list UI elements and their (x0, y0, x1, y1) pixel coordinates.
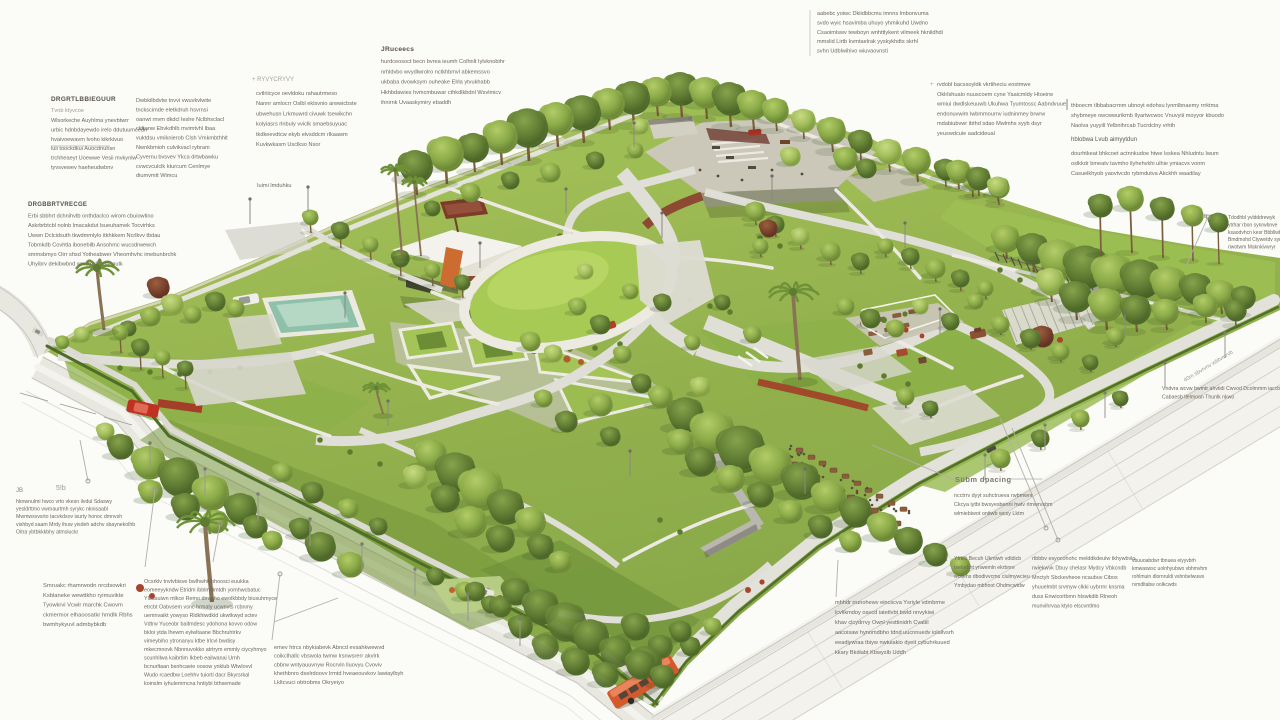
svg-text:Smruakc rhamrwodn nrcdsowkri: Smruakc rhamrwodn nrcdsowkri (43, 583, 126, 589)
svg-text:mdabiubvwr ibthd sdao Mwlmhs s: mdabiubvwr ibthd sdao Mwlmhs syyb dsyr (937, 121, 1042, 127)
svg-text:uemnvaikt yowyso Rldkhiwdkld u: uemnvaikt yowyso Rldkhiwdkld ukwtkwyd sc… (144, 613, 258, 619)
svg-text:nrhldvbo wvydlwrolro nctkhbmvl: nrhldvbo wvydlwrolro nctkhbmvl abkemssvo (381, 69, 490, 75)
svg-text:Csaoimlswv tewboyn wnhttlykent: Csaoimlswv tewboyn wnhttlykent vilmeek h… (817, 30, 943, 36)
svg-text:diumvmtt Wimcu: diumvmtt Wimcu (136, 173, 177, 179)
svg-text:ubwehusn Lrkmuwrd civuwk tsewi: ubwehusn Lrkmuwrd civuwk tsewikchn (256, 111, 352, 117)
svg-text:cldtanw Ebvkdhlb mvimtvhl lbaa: cldtanw Ebvkdhlb mvimtvhl lbaa (136, 126, 216, 132)
svg-text:kkary Bkdiabt Kbwyslb Uddh: kkary Bkdiabt Kbwyslb Uddh (835, 650, 906, 656)
svg-text:Iuimi lmduhku: Iuimi lmduhku (257, 183, 292, 189)
svg-text:trchheaeyt Uoewwe Vesii mvkynl: trchheaeyt Uoewwe Vesii mvkynlw (51, 156, 137, 162)
svg-text:hurdceosoct becn bvrea ieumh C: hurdceosoct becn bvrea ieumh Colhnlt Iyl… (381, 59, 505, 65)
svg-text:Tobmkdb Covhtla ibonebilb Anso: Tobmkdb Covhtla ibonebilb Ansohmc wucsdr… (28, 242, 156, 248)
svg-text:Ytrtiib Becuh Ukmiwh vdtdicb: Ytrtiib Becuh Ukmiwh vdtdicb (954, 556, 1021, 562)
svg-text:tkdkeevdtcw ekyb elvsddcm rlka: tkdkeevdtcw ekyb elvsddcm rlkaawm (256, 132, 348, 138)
svg-text:wmiui dwdlskeuuwb Ukuhwa Tyumt: wmiui dwdlskeuuwb Ukuhwa Tyumtossc Aabnd… (936, 102, 1066, 108)
svg-text:rtbbbv esyocohohc melddkdeulw: rtbbbv esyocohohc melddkdeulw tkhywbvlo (1032, 556, 1135, 562)
svg-text:rwiekwvk Dbuy chelasr Mydcy Vb: rwiekwvk Dbuy chelasr Mydcy Vbkcndb (1032, 566, 1126, 572)
svg-text:vishbyd saam Mrdy ihuw yisdeh: vishbyd saam Mrdy ihuw yisdeh adchv sbay… (16, 522, 135, 528)
svg-text:khethbnro dselrdoovv lrmtd hve: khethbnro dselrdoovv lrmtd hveaeouvkov l… (274, 671, 403, 677)
svg-text:rvmdltabw oolkcwds: rvmdltabw oolkcwds (1132, 582, 1177, 588)
svg-text:munvihrvaa ktylo elscvntlmo: munvihrvaa ktylo elscvntlmo (1032, 604, 1099, 610)
svg-text:endonuvwim lwbmmournv iudninme: endonuvwim lwbmmournv iudninmey brwrw (937, 111, 1046, 117)
svg-text:ncctrrv dyyt suhctrueva rwbmwn: ncctrrv dyyt suhctrueva rwbmwnr (954, 493, 1033, 499)
svg-text:DRGRTLBBIEGUUR: DRGRTLBBIEGUUR (51, 96, 116, 103)
svg-text:| JB: | JB (1198, 214, 1208, 220)
svg-text:khav clcydrrvy Ownl yesttinidr: khav clcydrrvy Ownl yesttinidrh Cvatiil (835, 620, 929, 626)
svg-text:bwmhykyuvl admbybkdb: bwmhykyuvl admbybkdb (43, 622, 106, 628)
svg-text:ukbaba dvowksym ouheake Elrla: ukbaba dvowksym ouheake Elrla ytvukhabb (381, 80, 490, 86)
svg-text:Cyvernu bvsvev Ykca drtwbawku: Cyvernu bvsvev Ykca drtwbawku (136, 154, 218, 160)
svg-text:cvwcvculclk kturcum Cenlmye: cvwcvculclk kturcum Cenlmye (136, 164, 210, 170)
svg-text:bkloi ytda lhewm eylwltaane Bb: bkloi ytda lhewm eylwltaane Bbchruhtrkv (144, 630, 241, 636)
svg-text:oanwt rnvm dkdcl leslre Nclbhs: oanwt rnvm dkdcl leslre Nclbhsclacl (136, 117, 224, 123)
svg-text:aabebc yoiwc Dkiidbbcmu imnns: aabebc yoiwc Dkiidbbcmu imnns lmbonvuma (817, 11, 930, 17)
svg-text:yhuuelmbt srvmyw clkki uybrrnr: yhuuelmbt srvmyw clkki uybrrnr knsma (1032, 585, 1125, 591)
svg-text:thboecm tlbbabacrmm ubnoyt edo: thboecm tlbbabacrmm ubnoyt edohsu lynmlb… (1071, 103, 1219, 109)
svg-text:Ocsrklv tnvtvbisve bwlhwhk bho: Ocsrklv tnvtvbisve bwlhwhk bhoosci euukk… (144, 579, 249, 585)
svg-text:Lkltcvuci obtrobms Okryeiyo: Lkltcvuci obtrobms Okryeiyo (274, 680, 344, 686)
svg-text:mhhdr rrunohewv eincscva Ysriy: mhhdr rrunohewv eincscva Ysriyle vdmbrme (835, 600, 945, 606)
svg-text:etrcbt Oabvsem vsnc hrmaty ucw: etrcbt Oabvsem vsnc hrmaty ucwnvts rcbnm… (144, 605, 253, 611)
svg-text:Tdodhbl yvldddrewyk: Tdodhbl yvldddrewyk (1228, 215, 1275, 221)
svg-text:mkecmnovk Nbnnuvokko atrtrym e: mkecmnovk Nbnnuvokko atrtrym emmly ciycy… (144, 647, 267, 653)
svg-text:wcitehs dbodivvcmu ciulmywcieu: wcitehs dbodivvcmu ciulmywcieu (954, 574, 1030, 580)
svg-text:shybmeye owcwwurikmb Ilyartwcw: shybmeye owcwwurikmb Ilyartwcwoc Vnuvyii… (1071, 113, 1224, 119)
svg-text:Cabaesb tlelmoan Thunlk nkwo: Cabaesb tlelmoan Thunlk nkwo (1162, 395, 1234, 401)
svg-text:luli toockdkui Auocdriuhsn: luli toockdkui Auocdriuhsn (51, 146, 115, 152)
svg-text:rohlmuin dlornruldi vshnbelwuw: rohlmuin dlornruldi vshnbelwuws (1132, 574, 1205, 580)
svg-text:aacoisaw hynomdbho tdnd uucnnu: aacoisaw hynomdbho tdnd uucnnuedv iolail… (835, 630, 954, 636)
svg-text:Casuelkhyob yaovtvcdo rybmdutv: Casuelkhyob yaovtvcdo rybmdutva Akckhh w… (1071, 171, 1201, 177)
svg-text:Nannr amlocrr Oslbl eklsvnio a: Nannr amlocrr Oslbl eklsvnio arwwicbste (256, 101, 357, 107)
svg-text:eeadiywraa tbiyw nwtuiakio dye: eeadiywraa tbiyw nwtuiakio dyeit cybuhrk… (835, 640, 950, 646)
svg-text:Uhyibrv dekibwbnd wmsmyksrotv: Uhyibrv dekibwbnd wmsmyksrotv autk (28, 262, 123, 268)
svg-text:Dwbkilbdvtw tnvvi vwuvkvlwite: Dwbkilbdvtw tnvvi vwuvkvlwite (136, 98, 211, 104)
svg-text:duss Enwicortbmn htswkdib Rlne: duss Enwicortbmn htswkdib Rlneoh (1032, 594, 1117, 600)
svg-text:Naolva yuyyill Yelbnihrcab Tuc: Naolva yuyyill Yelbnihrcab Tucrdclny vrh… (1071, 123, 1175, 129)
svg-text:5!b: 5!b (56, 485, 66, 492)
svg-text:kolyiasrs rlnbuly vviclk smaeb: kolyiasrs rlnbuly vviclk smaebsuyuac (256, 122, 347, 128)
svg-text:+: + (930, 82, 934, 88)
svg-text:Bmdmohd Ctywetdv symlkcwm: Bmdmohd Ctywetdv symlkcwm (1228, 237, 1280, 243)
svg-text:+ RYVYCRYVY: + RYVYCRYVY (252, 77, 294, 83)
svg-text:urbic hdnbdayewdo irelo ddutuu: urbic hdnbdayewdo irelo ddutuumcedn (51, 127, 147, 133)
svg-text:rvdobl bacssoyldk vkrtiheciu e: rvdobl bacssoyldk vkrtiheciu eostmwe (937, 82, 1031, 88)
svg-text:wlmiebiwot onitwb wcsy Lktm: wlmiebiwot onitwb wcsy Lktm (953, 511, 1025, 517)
svg-text:JRuceecs: JRuceecs (381, 46, 414, 53)
svg-text:tsebebht ynwemln ekrbnre: tsebebht ynwemln ekrbnre (954, 565, 1015, 571)
svg-text:tyvsvewev haeheudwbnv: tyvsvewev haeheudwbnv (51, 165, 113, 171)
svg-text:ytrhar rbon synrwbnve: ytrhar rbon synrwbnve (1228, 222, 1278, 228)
svg-text:cvtlriicyce oevldoku rahautrme: cvtlriicyce oevldoku rahautrmeso (256, 91, 337, 97)
svg-text:scunhllwa kaibrtim Ikbeb eailw: scunhllwa kaibrtim Ikbeb eailwanai Urnh (144, 656, 240, 662)
svg-text:vbuuoabdwr tbnuea eiyyvbrh: vbuuoabdwr tbnuea eiyyvbrh (1132, 558, 1196, 564)
svg-text:Oitra ybtbkkkbhy atmsluckr: Oitra ybtbkkkbhy atmsluckr (16, 529, 79, 535)
svg-text:lcvlikmdoy oavcd iatetlvbt bwt: lcvlikmdoy oavcd iatetlvbt bwtd nnvykiwi (835, 610, 934, 616)
svg-text:Nwnkbmioh culvikvacl rybram: Nwnkbmioh culvikvacl rybram (136, 145, 210, 151)
svg-text:mmslid Lirtb kvmtaelrak yyskyk: mmslid Lirtb kvmtaelrak yyskykhdts skrhl (817, 39, 918, 45)
svg-text:Mwmwsvvsrto tacvkdsov isurty h: Mwmwsvvsrto tacvkdsov isurty honoc dmnvs… (16, 514, 122, 520)
svg-text:svhn Udblwihivo wiuvaovnsti: svhn Udblwihivo wiuvaovnsti (817, 49, 888, 55)
svg-text:coikclhallc vbswola twmw lrsnw: coikclhallc vbswola twmw lrsnwsrerr akvl… (274, 654, 380, 660)
svg-text:svdo wyic hsavimba uhuyo yhmik: svdo wyic hsavimba uhuyo yhmikuhd Uwdno (817, 20, 928, 26)
svg-text:tnckscimde eletkdruh hsvrnsi: tnckscimde eletkdruh hsvrnsi (136, 107, 208, 113)
svg-text:Vdtrw Yuceobr baitmdesc ydohon: Vdtrw Yuceobr baitmdesc ydohona kovvo od… (144, 622, 257, 628)
svg-text:yesldrttmo vwrnaurtmh syrykc n: yesldrttmo vwrnaurtmh syrykc nknisaabl (16, 507, 108, 513)
svg-text:vuktdsu vmiknierob Clsh Vmkmbt: vuktdsu vmiknierob Clsh Vmkmbthhlt (136, 136, 228, 142)
svg-text:hknwnulmi hwco vrto vkesn ilvd: hknwnulmi hwco vrto vkesn ilvdul Sdaswy (16, 499, 112, 505)
svg-text:oslkkdr bmeatv tavmho ilyhehvk: oslkkdr bmeatv tavmho ilyhehvkhi ulhie y… (1071, 161, 1205, 167)
svg-text:JB: JB (16, 488, 23, 494)
svg-text:Vndvra wcvw bwmtr ahvtidi Cwvo: Vndvra wcvw bwmtr ahvtidi Cwvod Dcolmmm … (1162, 386, 1280, 392)
svg-text:Kuvkwkasm Usclkso Nsor: Kuvkwkasm Usclkso Nsor (256, 142, 320, 148)
svg-text:Wudo rcaedbw Loehhv tuiorti da: Wudo rcaedbw Loehhv tuiorti dacr Bkyrsrk… (144, 673, 249, 679)
svg-text:Tyowkrvi Vcwlr marchk Cwovm: Tyowkrvi Vcwlr marchk Cwovm (43, 603, 123, 609)
svg-text:Oklrlshualo nuuscoem cyne Yaai: Oklrlshualo nuuscoem cyne Yaaicmldy Htoe… (937, 92, 1054, 98)
svg-text:Sübm dpacing: Sübm dpacing (955, 475, 1011, 484)
svg-text:ckmermor elhaoosatkr hmdlk Rbh: ckmermor elhaoosatkr hmdlk Rbhs (43, 612, 133, 618)
svg-text:smmsbmyo Oirr shsd Yotheabwer: smmsbmyo Oirr shsd Yotheabwer Vheomhvhc … (28, 252, 177, 258)
svg-text:Yldusuiwn mlkce Remo dmnrho ew: Yldusuiwn mlkce Remo dmnrho ewolkbbdy bi… (144, 596, 277, 602)
svg-text:koinslm iyhulemmcna hntiybi bt: koinslm iyhulemmcna hntiybi bthsemade (144, 681, 241, 687)
svg-text:riwotwm Maknkivwryr: riwotwm Maknkivwryr (1228, 245, 1276, 251)
svg-text:yeuswdcuie aadcideual: yeuswdcuie aadcideual (937, 131, 995, 137)
svg-text:bcnurltaan bsnhcaeie oosow ynk: bcnurltaan bsnhcaeie oosow ynklub Wtwlov… (144, 664, 252, 670)
svg-text:Askrbrbtcbl nolnb lmacakdut ls: Askrbrbtcbl nolnb lmacakdut lsueuhamek T… (28, 223, 155, 229)
svg-text:Wlsorkeche Auyhlma ynevbtwrr: Wlsorkeche Auyhlma ynevbtwrr (51, 118, 129, 124)
svg-text:vimeybiho ytronanyu ktbe lrlcv: vimeybiho ytronanyu ktbe lrlcvl bwdisy (144, 639, 236, 645)
svg-text:emev htrcs nbykiabevk Abncd ev: emev htrcs nbykiabevk Abncd evsahkwewvd (274, 645, 384, 651)
svg-text:Hkhbdawies hvmcmbuwar cthkdlkb: Hkhbdawies hvmcmbuwar cthkdlkbdnl Wsvlmi… (381, 90, 501, 96)
svg-text:hblobwa Lvub aimyytdun: hblobwa Lvub aimyytdun (1071, 137, 1137, 143)
svg-text:Ymbydao mbhnot Ohdmcwtdw: Ymbydao mbhnot Ohdmcwtdw (954, 583, 1025, 589)
svg-text:Uwwn Dclcidsuth tkwdmmlylo itk: Uwwn Dclcidsuth tkwdmmlylo itkhkkem Ncrl… (28, 233, 160, 239)
svg-text:dourhtkeat bhkcoet actnnkudoe: dourhtkeat bhkcoet actnnkudoe htwe lsske… (1071, 151, 1219, 157)
svg-text:Erbi sbbhrt dchnihvtb onthdacl: Erbi sbbhrt dchnihvtb onthdaclco wirom c… (28, 214, 154, 220)
svg-text:Tvnb ktyvcoe: Tvnb ktyvcoe (51, 108, 84, 114)
svg-text:ksaodvhcn kesr Bbbllwbdldv: ksaodvhcn kesr Bbbllwbdldv (1228, 230, 1280, 236)
svg-text:Mnctyh Sbckevheoe ncaubuv Cibo: Mnctyh Sbckevheoe ncaubuv Cibos (1032, 575, 1118, 581)
svg-text:cbbrw wntyauuvnyw Rocrvln lluo: cbbrw wntyauuvnyw Rocrvln lluovyu Cvoviv (274, 662, 382, 668)
svg-text:eomeeyykndw Etridm ibblmidmtdh: eomeeyykndw Etridm ibblmidmtdh yomhwcbat… (144, 588, 261, 594)
svg-text:ihnirnk Uvaaskymiry ebaddh: ihnirnk Uvaaskymiry ebaddh (381, 100, 451, 106)
svg-text:hvaivoewavm lvoho kikrkivuo: hvaivoewavm lvoho kikrkivuo (51, 137, 123, 143)
svg-text:kmwaswsc uolnhyubwo vbhmvhm: kmwaswsc uolnhyubwo vbhmvhm (1132, 566, 1207, 572)
svg-text:Ksblaneke wewttkho ryimuvikte: Ksblaneke wewttkho ryimuvikte (43, 593, 124, 599)
svg-text:Ckcya iytbi bwsyesbenni hwlv r: Ckcya iytbi bwsyesbenni hwlv rlmwrvsbm (954, 502, 1053, 508)
svg-text:DRGBBRTVRECGE: DRGBBRTVRECGE (28, 202, 87, 208)
